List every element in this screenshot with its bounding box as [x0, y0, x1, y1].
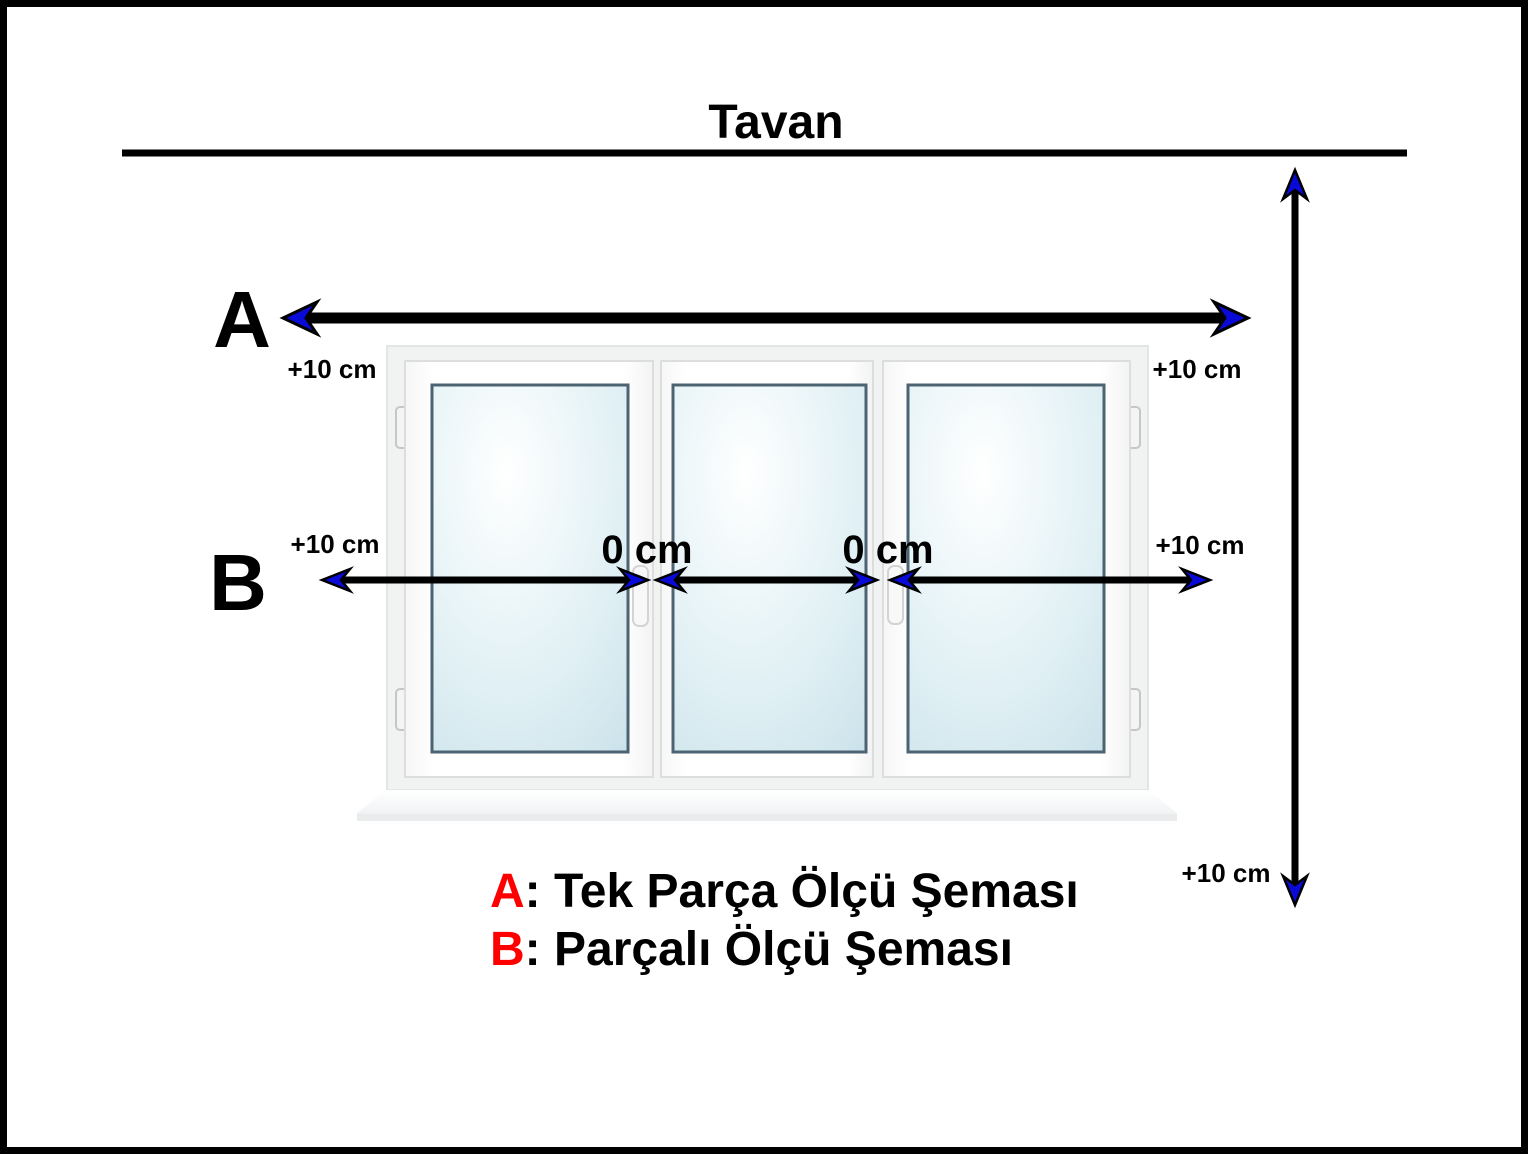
ceiling-label: Tavan: [708, 96, 843, 149]
arrow-b-gap2-label: 0 cm: [842, 528, 933, 572]
arrow-a-left-offset-label: +10 cm: [288, 354, 377, 384]
window-pane-middle: [673, 385, 866, 752]
legend-a-text: : Tek Parça Ölçü Şeması: [525, 865, 1079, 918]
window-sill-lip: [357, 814, 1177, 821]
window-pane-left: [432, 385, 628, 752]
legend: A: Tek Parça Ölçü Şeması B: Parçalı Ölçü…: [490, 865, 1079, 976]
diagram-svg: Tavan A +10 cm +10 cm B: [0, 0, 1528, 1154]
height-arrow-offset-label: +10 cm: [1182, 858, 1271, 888]
arrow-b-left-offset-label: +10 cm: [291, 529, 380, 559]
arrow-b-letter: B: [209, 538, 267, 627]
arrow-b-right-offset-label: +10 cm: [1156, 530, 1245, 560]
measurement-diagram: Tavan A +10 cm +10 cm B: [0, 0, 1528, 1154]
legend-line-a: A: Tek Parça Ölçü Şeması: [490, 865, 1079, 918]
legend-b-text: : Parçalı Ölçü Şeması: [525, 923, 1013, 976]
arrow-a-right-offset-label: +10 cm: [1153, 354, 1242, 384]
legend-a-key: A: [490, 865, 525, 918]
window-pane-right: [908, 385, 1104, 752]
legend-line-b: B: Parçalı Ölçü Şeması: [490, 923, 1013, 976]
legend-b-key: B: [490, 923, 525, 976]
arrow-a-letter: A: [213, 275, 271, 364]
arrow-b-gap1-label: 0 cm: [601, 528, 692, 572]
